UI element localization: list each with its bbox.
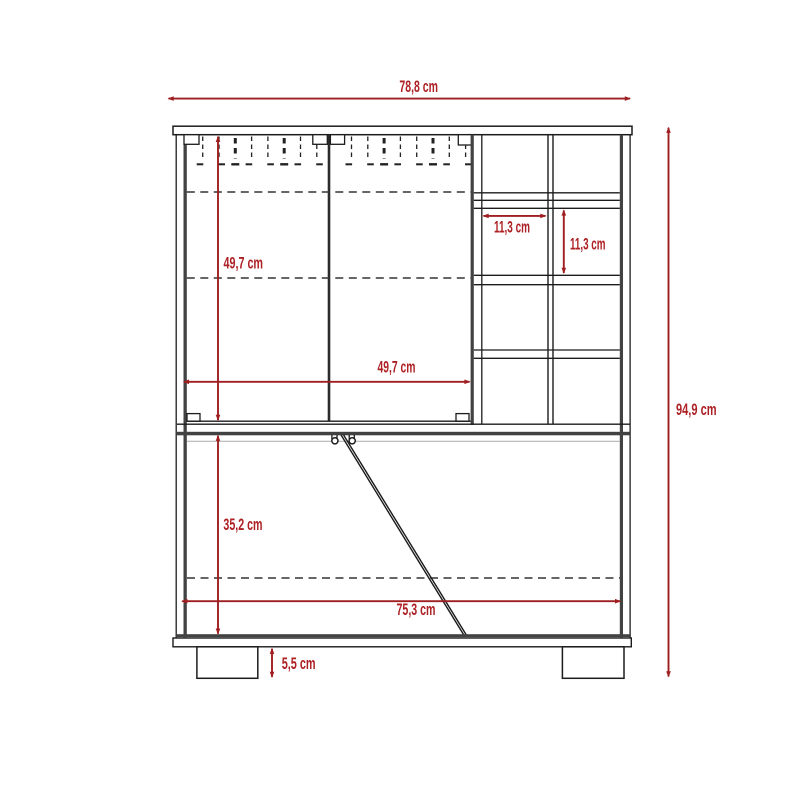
svg-text:49,7 cm: 49,7 cm [378, 358, 416, 377]
svg-text:94,9 cm: 94,9 cm [676, 400, 717, 419]
svg-text:35,2 cm: 35,2 cm [223, 515, 262, 534]
svg-text:11,3 cm: 11,3 cm [494, 218, 530, 237]
svg-text:5,5 cm: 5,5 cm [282, 654, 316, 673]
svg-text:11,3 cm: 11,3 cm [570, 235, 606, 254]
svg-text:78,8 cm: 78,8 cm [399, 77, 438, 96]
svg-text:75,3 cm: 75,3 cm [397, 600, 436, 619]
svg-text:49,7 cm: 49,7 cm [224, 254, 264, 273]
